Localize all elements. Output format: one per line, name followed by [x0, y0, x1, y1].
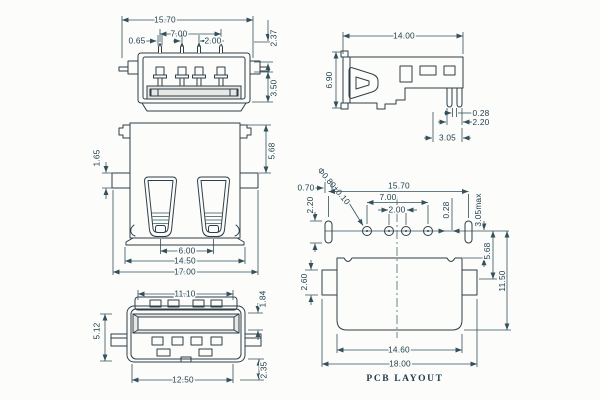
dim-rear-contact-width: 0.65: [129, 36, 146, 46]
dim-front-base-width: 14.50: [174, 256, 196, 266]
dim-plug-overall-height: 5.12: [92, 322, 102, 339]
technical-drawing-canvas: 15.70 7.00 0.65 2.00 2.37 3.50: [0, 0, 600, 400]
dim-pcb-slot-pad-span: 15.70: [388, 181, 410, 191]
dim-pcb-body-width: 14.60: [388, 345, 410, 355]
dim-pcb-side-pad-height: 2.60: [299, 273, 309, 290]
dim-plug-opening-height: 1.84: [258, 290, 268, 307]
dim-pcb-slot-pad-width: 0.70: [298, 183, 315, 193]
side-lead-2: [457, 88, 462, 107]
dim-side-overall-height: 6.90: [324, 71, 334, 88]
side-lead-1: [447, 88, 452, 107]
dim-plug-shell-width: 12.50: [172, 375, 194, 385]
dim-pcb-overall-width: 18.00: [389, 359, 411, 369]
dim-rear-overall-width: 15.70: [154, 15, 176, 25]
dim-pcb-hole-pitch: 2.00: [389, 205, 406, 215]
dim-rear-tail-height: 2.37: [269, 29, 279, 46]
dim-pcb-slot-pad-height: 2.20: [305, 196, 315, 213]
dim-plug-foot-height: 2.35: [259, 361, 269, 378]
dim-side-lead-offset: 3.05: [439, 133, 456, 143]
dim-pcb-hole-span: 7.00: [380, 192, 397, 202]
dim-pcb-hole-offset: 0.28: [441, 201, 451, 218]
dim-plug-opening-width: 11.10: [174, 289, 195, 299]
dim-front-overall-width: 17.00: [174, 267, 196, 277]
dim-rear-contact-span: 7.00: [171, 29, 188, 39]
dim-front-flange-thickness: 1.65: [92, 149, 102, 166]
pcb-layout-caption: PCB LAYOUT: [366, 374, 443, 384]
dim-front-top-to-flange: 5.68: [267, 142, 277, 159]
dim-pcb-row-to-body-edge: 3.05max: [473, 193, 483, 227]
background: [0, 0, 600, 400]
dim-side-overall-depth: 14.00: [393, 31, 415, 41]
dim-pcb-row-to-side-pad: 5.68: [482, 242, 492, 259]
dim-front-slot-spacing: 6.00: [179, 246, 196, 256]
dim-rear-lower-height: 3.50: [269, 79, 279, 96]
dim-side-lead-span: 2.20: [473, 117, 490, 127]
connector-drawing: 15.70 7.00 0.65 2.00 2.37 3.50: [0, 0, 600, 400]
dim-rear-contact-pitch: 2.00: [205, 36, 222, 46]
dim-pcb-row-to-bottom-edge: 11.50: [497, 270, 507, 291]
